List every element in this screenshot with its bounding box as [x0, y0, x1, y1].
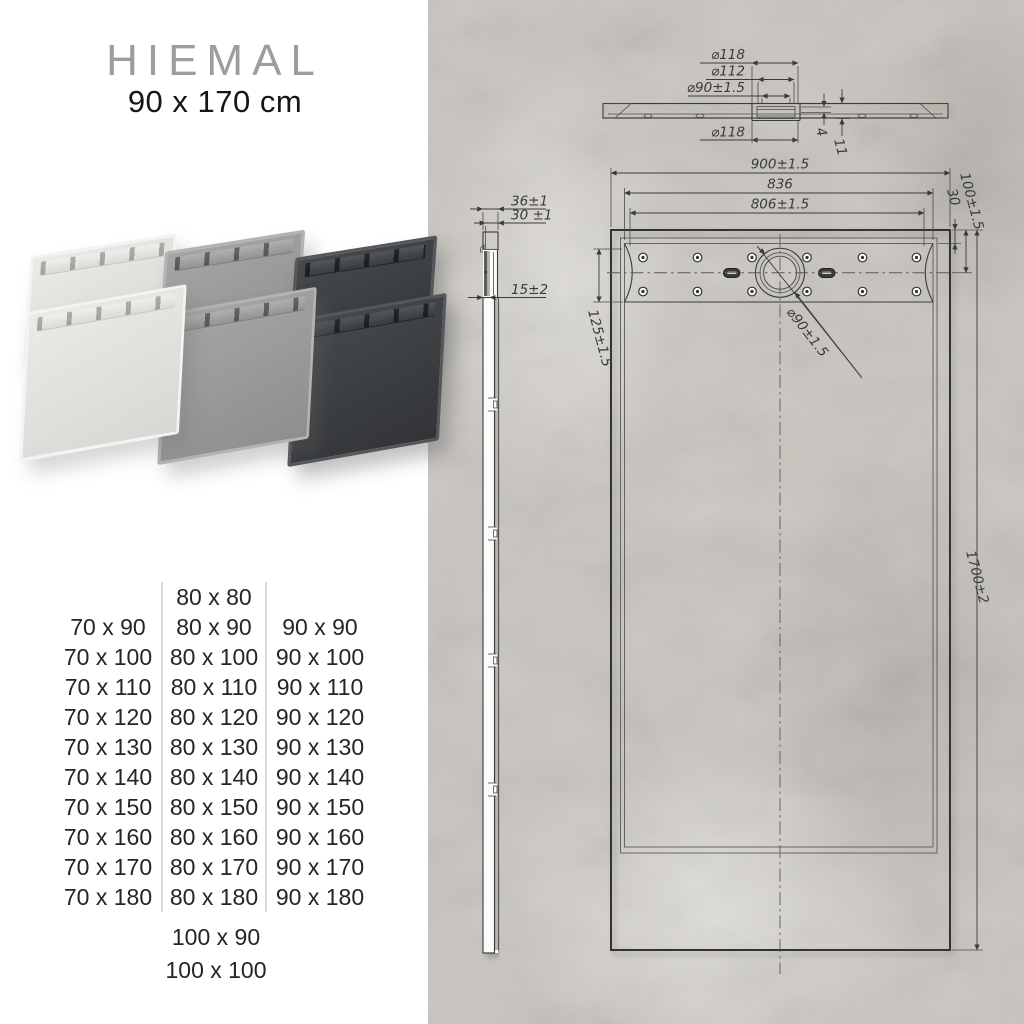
size-option: 90 x 100 [267, 642, 373, 672]
size-option: 70 x 110 [55, 672, 161, 702]
tray-drain-strip [174, 238, 294, 271]
size-option: 100 x 100 [0, 954, 432, 987]
size-option: 90 x 120 [267, 702, 373, 732]
product-size-subtitle: 90 x 170 cm [0, 84, 430, 120]
size-option: 80 x 80 [163, 582, 265, 612]
size-option: 70 x 160 [55, 822, 161, 852]
size-option: 70 x 150 [55, 792, 161, 822]
dim-label-900: 900±1.5 [751, 157, 810, 173]
dim-label-806: 806±1.5 [751, 197, 810, 213]
sizes-column-70: 70 x 90 70 x 100 70 x 110 70 x 120 70 x … [55, 582, 161, 912]
sizes-column-80: 80 x 80 80 x 90 80 x 100 80 x 110 80 x 1… [161, 582, 267, 912]
size-option: 70 x 120 [55, 702, 161, 732]
size-option: 90 x 150 [267, 792, 373, 822]
product-name-title: HIEMAL [0, 36, 430, 86]
sizes-column-90: 90 x 90 90 x 100 90 x 110 90 x 120 90 x … [267, 582, 373, 912]
dim-label-15: 15±2 [511, 282, 548, 298]
size-option: 70 x 100 [55, 642, 161, 672]
dim-label-d118-top: ⌀118 [711, 47, 745, 63]
size-option: 100 x 90 [0, 921, 432, 954]
concrete-background [428, 0, 1024, 1024]
tray-photo-white-front [19, 284, 186, 462]
size-option: 80 x 170 [163, 852, 265, 882]
size-option: 90 x 170 [267, 852, 373, 882]
size-option: 80 x 90 [163, 612, 265, 642]
size-option: 80 x 160 [163, 822, 265, 852]
dim-label-836: 836 [767, 177, 793, 193]
size-option: 80 x 150 [163, 792, 265, 822]
size-option: 80 x 140 [163, 762, 265, 792]
tray-drain-strip [40, 242, 165, 276]
spec-sheet-page: HIEMAL 90 x 170 cm [0, 0, 1024, 1024]
size-option: 80 x 180 [163, 882, 265, 912]
size-option: 80 x 110 [163, 672, 265, 702]
size-option: 90 x 110 [267, 672, 373, 702]
size-option: 70 x 90 [55, 612, 161, 642]
extra-sizes-list: 100 x 90 100 x 100 [0, 921, 432, 987]
left-panel: HIEMAL 90 x 170 cm [0, 0, 430, 1024]
dim-label-d90-section: ⌀90±1.5 [687, 80, 745, 96]
size-option: 90 x 180 [267, 882, 373, 912]
dim-label-d112: ⌀112 [711, 64, 745, 80]
size-option: 80 x 130 [163, 732, 265, 762]
size-option: 90 x 90 [267, 612, 373, 642]
technical-drawing: ⌀118 ⌀112 ⌀90±1.5 ⌀118 4 [428, 0, 1024, 1024]
size-option: 90 x 160 [267, 822, 373, 852]
size-option: 80 x 100 [163, 642, 265, 672]
size-option: 70 x 130 [55, 732, 161, 762]
size-option: 90 x 140 [267, 762, 373, 792]
product-photo-collage [8, 212, 424, 470]
size-option: 70 x 180 [55, 882, 161, 912]
dim-label-30-side: 30 ±1 [511, 208, 552, 224]
size-option: 70 x 140 [55, 762, 161, 792]
size-option: 90 x 130 [267, 732, 373, 762]
size-option: 70 x 170 [55, 852, 161, 882]
size-option: 80 x 120 [163, 702, 265, 732]
available-sizes-table: 70 x 90 70 x 100 70 x 110 70 x 120 70 x … [55, 582, 377, 912]
dim-label-d118-bottom: ⌀118 [711, 125, 745, 141]
tray-drain-strip [304, 244, 426, 277]
